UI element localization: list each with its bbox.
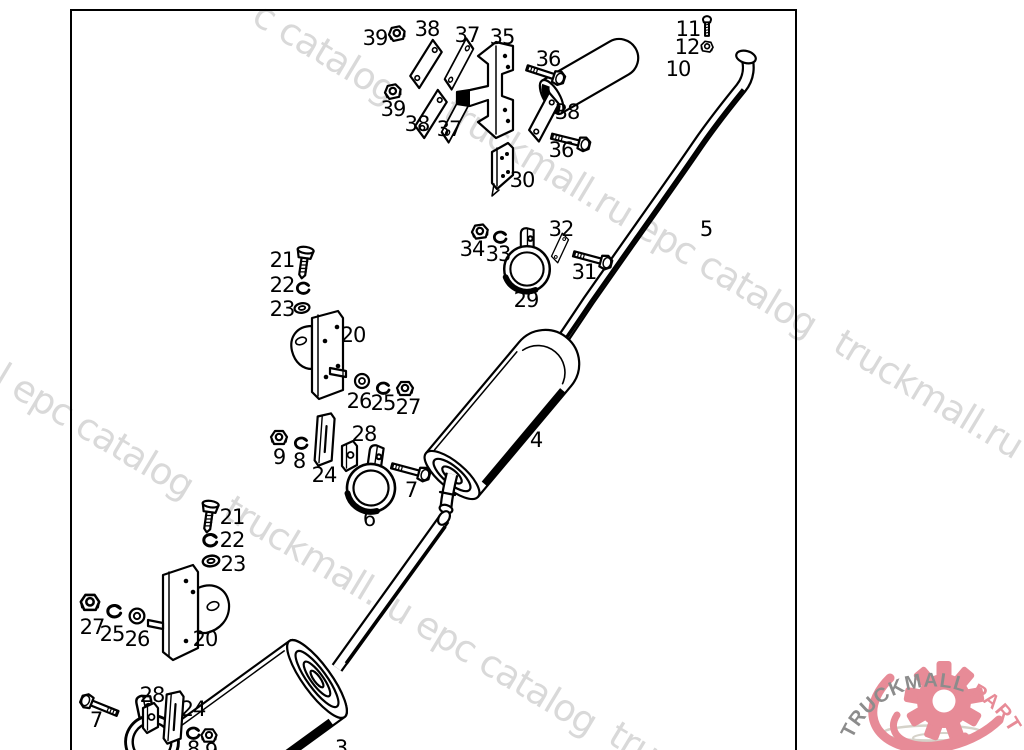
washer-26-a (355, 374, 369, 388)
lockwasher-22-a (297, 283, 309, 293)
part-label-28: 28 (352, 422, 377, 446)
part-label-3: 3 (335, 736, 347, 750)
part-label-12: 12 (675, 35, 700, 59)
part-label-37: 37 (437, 117, 462, 141)
part-label-26: 26 (125, 627, 150, 651)
part-label-38: 38 (405, 112, 430, 136)
lockwasher-8-a (295, 438, 307, 448)
part-label-38: 38 (555, 100, 580, 124)
part-label-24: 24 (181, 697, 206, 721)
part-label-8: 8 (293, 449, 305, 473)
part-label-22: 22 (220, 528, 245, 552)
strap-38-a (407, 40, 444, 88)
part-label-4: 4 (530, 428, 543, 452)
exhaust-parts-diagram: c catalogtruckmall.ru epc catalogtruckma… (0, 0, 1024, 750)
nut-12 (700, 41, 714, 53)
part-label-26: 26 (347, 389, 372, 413)
nut-27-b (81, 595, 99, 610)
lockwasher-25-b (108, 605, 121, 616)
part-label-22: 22 (270, 273, 295, 297)
part-label-30: 30 (510, 168, 535, 192)
part-label-8: 8 (187, 737, 199, 750)
part-label-36: 36 (536, 47, 561, 71)
lockwasher-22-b (204, 534, 217, 545)
part-label-6: 6 (363, 507, 376, 531)
clamp-29 (504, 228, 550, 292)
nut-39-a (388, 25, 406, 41)
part-label-24: 24 (312, 463, 337, 487)
part-label-23: 23 (270, 297, 295, 321)
bolt-21-a (294, 246, 314, 280)
parts-diagram-page: c catalogtruckmall.ru epc catalogtruckma… (0, 0, 1024, 750)
part-label-21: 21 (270, 248, 295, 272)
screw-11 (703, 16, 711, 36)
part-label-25: 25 (100, 622, 125, 646)
washer-26-b (130, 609, 145, 624)
part-label-36: 36 (549, 138, 574, 162)
muffler-4 (418, 316, 594, 507)
part-label-25: 25 (371, 391, 396, 415)
part-label-32: 32 (549, 217, 574, 241)
part-label-20: 20 (193, 627, 218, 651)
washer-23-b (202, 555, 220, 568)
bracket-20-a (291, 311, 346, 399)
part-label-23: 23 (221, 552, 246, 576)
part-label-29: 29 (514, 288, 539, 312)
part-label-20: 20 (341, 323, 366, 347)
part-label-34: 34 (460, 237, 485, 261)
part-label-33: 33 (486, 242, 511, 266)
lockwasher-33 (494, 232, 506, 242)
part-label-31: 31 (572, 260, 597, 284)
part-label-28: 28 (140, 683, 165, 707)
watermark-text: c catalog (245, 0, 404, 112)
part-label-21: 21 (220, 505, 245, 529)
washer-23-a (294, 302, 310, 314)
part-label-39: 39 (363, 26, 388, 50)
plate-28-b (143, 703, 158, 733)
part-label-39: 39 (381, 97, 406, 121)
part-label-7: 7 (405, 478, 417, 502)
nut-9-a (271, 431, 287, 444)
part-label-37: 37 (455, 23, 480, 47)
hanger-24-a (314, 413, 335, 467)
watermark-text: truckmall.ru (601, 713, 805, 750)
part-label-35: 35 (490, 25, 515, 49)
watermark-text: l epc catalog (0, 355, 202, 507)
part-label-38: 38 (415, 17, 440, 41)
watermark-text: truckmall.ru epc catalog (826, 321, 1024, 578)
part-label-7: 7 (90, 708, 102, 732)
part-label-27: 27 (396, 395, 421, 419)
part-label-9: 9 (205, 739, 217, 750)
part-label-5: 5 (700, 217, 712, 241)
bolt-21-b (199, 500, 219, 534)
part-label-10: 10 (666, 57, 691, 81)
nut-27-a (397, 382, 413, 395)
part-label-9: 9 (273, 445, 285, 469)
